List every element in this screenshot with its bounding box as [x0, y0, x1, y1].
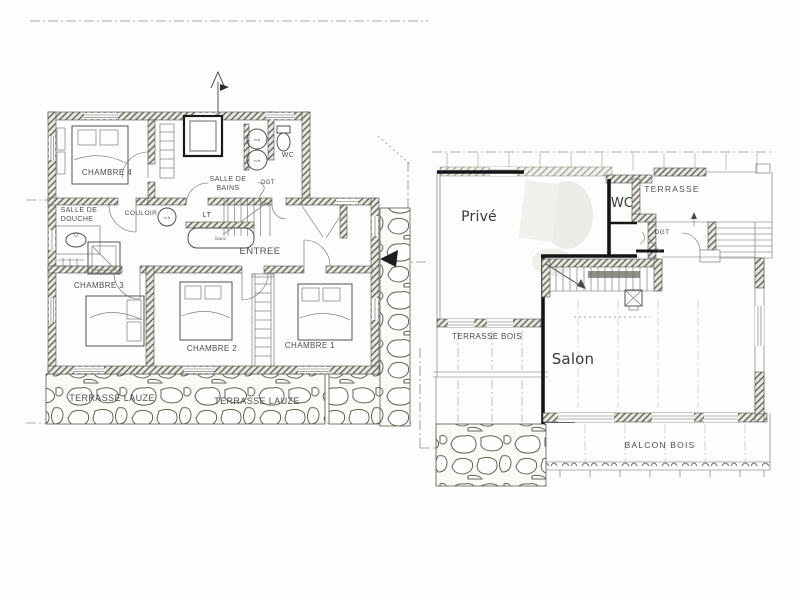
chimney-icon — [184, 116, 222, 156]
room-label-dgt-main: DGT — [655, 229, 670, 236]
stove-icon — [625, 290, 642, 310]
room-label-salon: Salon — [552, 350, 595, 368]
room-label-chambre1: CHAMBRE 1 — [285, 341, 335, 350]
floor-plan-drawing: CHAMBRE 4 SALLE DE BAINS WC DGT SALLE DE… — [0, 0, 800, 600]
room-label-dgt-upper: DGT — [261, 180, 275, 186]
room-label-salle-de-douche-1: SALLE DE — [61, 207, 98, 214]
room-label-chambre3: CHAMBRE 3 — [74, 281, 124, 290]
closet-chambre2-1 — [252, 274, 274, 366]
washbasin-icons-bathroom — [247, 129, 267, 170]
bed-icon-chambre3 — [86, 296, 144, 346]
room-label-wc-upper: WC — [282, 152, 294, 159]
toilet-icon — [277, 126, 290, 151]
room-label-salle-de-douche-2: DOUCHE — [61, 216, 94, 223]
terrace-label-bois: TERRASSE BOIS — [452, 332, 522, 341]
floor-plan-scan: CHAMBRE 4 SALLE DE BAINS WC DGT SALLE DE… — [0, 0, 800, 600]
construction-lines-right — [420, 152, 772, 448]
room-label-chambre2: CHAMBRE 2 — [187, 344, 237, 353]
room-label-lt: LT — [203, 210, 212, 219]
radiator-label-couloir: rcb — [164, 215, 171, 220]
bed-icon-chambre1 — [298, 284, 352, 340]
room-label-terrasse: TERRASSE — [644, 184, 699, 194]
bench-label: banc — [215, 236, 227, 241]
radiator-label-bains-2: rcb — [254, 158, 261, 163]
room-label-salle-de-bains-2: BAINS — [216, 185, 239, 192]
terrace-label-lauze-left: TERRASSE LAUZE — [69, 393, 155, 403]
exterior-stair — [700, 222, 772, 262]
upper-floor-plan: CHAMBRE 4 SALLE DE BAINS WC DGT SALLE DE… — [26, 21, 430, 426]
room-label-couloir: COULOIR — [125, 210, 157, 217]
room-label-entree: ENTREE — [240, 246, 281, 257]
main-floor-plan: Privé WC TERRASSE DGT Salon TERRASSE BOI… — [420, 152, 772, 486]
balcony-label-bois: BALCON BOIS — [625, 440, 696, 450]
north-arrow-icon — [211, 72, 229, 112]
room-label-salle-de-bains-1: SALLE DE — [210, 176, 247, 183]
room-label-chambre4: CHAMBRE 4 — [82, 168, 132, 177]
radiator-label-bains-1: rcb — [254, 137, 261, 142]
terrace-stone-right — [436, 424, 546, 486]
salon-guides — [578, 300, 698, 408]
bench-icon — [186, 222, 254, 248]
terrace-label-lauze-right: TERRASSE LAUZE — [214, 396, 300, 406]
room-label-prive: Privé — [461, 209, 497, 225]
bed-icon-chambre2 — [180, 282, 232, 340]
room-label-wc-main: WC — [611, 196, 633, 211]
